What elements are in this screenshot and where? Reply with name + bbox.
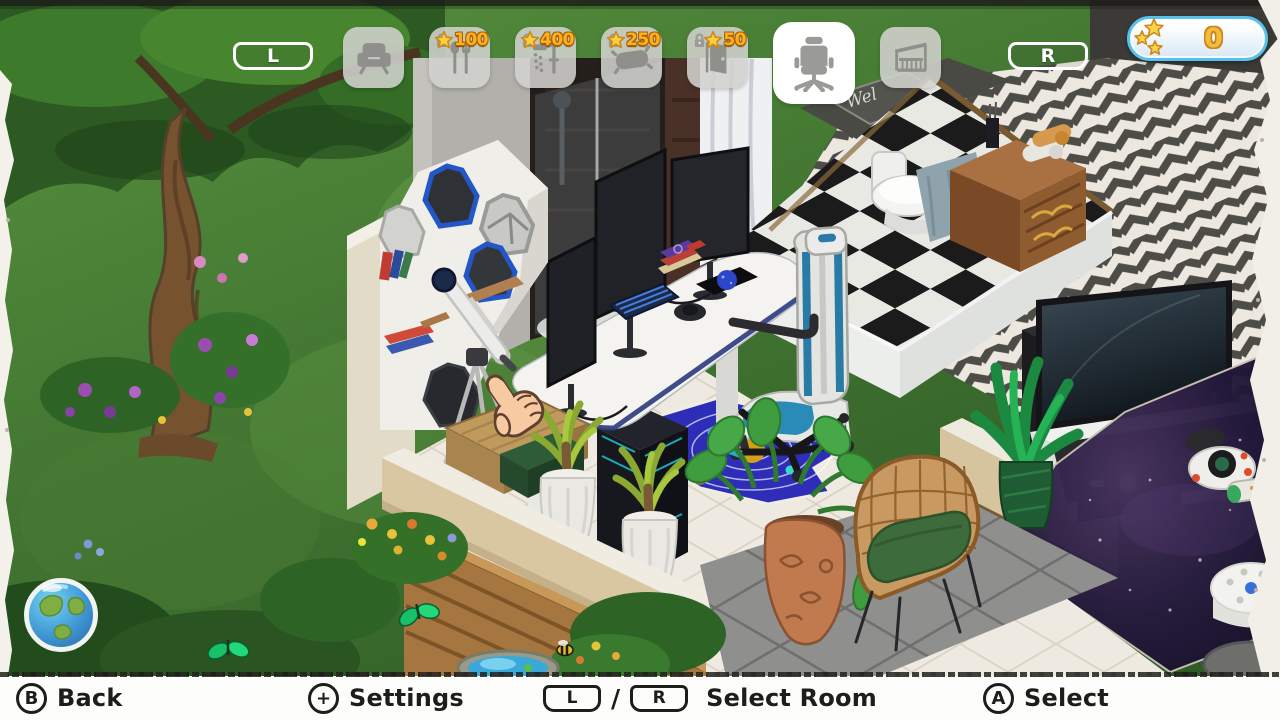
select-hint[interactable]: A Select bbox=[983, 676, 1109, 720]
a-button-icon: A bbox=[983, 683, 1014, 714]
b-button-icon: B bbox=[16, 683, 47, 714]
tab-price: 100 bbox=[434, 30, 488, 50]
stars-icon bbox=[1130, 17, 1176, 61]
tab-price: 50 bbox=[703, 30, 746, 50]
star-icon bbox=[434, 30, 454, 50]
select-room-label: Select Room bbox=[706, 684, 877, 712]
settings-hint[interactable]: + Settings bbox=[308, 676, 464, 720]
tab-hallway[interactable]: 50 bbox=[687, 27, 748, 88]
back-hint[interactable]: B Back bbox=[16, 676, 122, 720]
mouse bbox=[674, 303, 706, 321]
tab-bathroom[interactable]: 400 bbox=[515, 27, 576, 88]
left-shoulder-button[interactable]: L bbox=[233, 42, 313, 70]
plus-button-icon: + bbox=[308, 683, 339, 714]
office-chair-icon bbox=[785, 34, 843, 92]
tab-kitchen[interactable]: 100 bbox=[429, 27, 490, 88]
tab-price: 250 bbox=[606, 30, 660, 50]
settings-label: Settings bbox=[349, 684, 464, 712]
star-icon bbox=[606, 30, 626, 50]
select-room-hint[interactable]: L / R Select Room bbox=[543, 676, 877, 720]
tab-office[interactable] bbox=[773, 22, 855, 104]
tab-living-room[interactable] bbox=[343, 27, 404, 88]
back-label: Back bbox=[57, 684, 122, 712]
game-screen: Wel bbox=[0, 0, 1280, 720]
star-balance: 0 bbox=[1176, 23, 1265, 54]
l-key-icon: L bbox=[543, 685, 601, 712]
armchair-icon bbox=[353, 37, 395, 79]
footer-hint-bar: B Back + Settings L / R Select Room A Se… bbox=[0, 676, 1280, 720]
tab-bedroom[interactable]: 250 bbox=[601, 27, 662, 88]
balcony-icon bbox=[890, 37, 932, 79]
map-globe-button[interactable] bbox=[22, 576, 100, 654]
star-icon bbox=[703, 30, 723, 50]
star-icon bbox=[520, 30, 540, 50]
star-currency-display: 0 bbox=[1127, 16, 1268, 61]
right-shoulder-button[interactable]: R bbox=[1008, 42, 1088, 70]
room-category-tabs: 100 400 bbox=[343, 27, 1088, 104]
r-key-icon: R bbox=[630, 685, 688, 712]
separator: / bbox=[611, 684, 620, 713]
tab-balcony[interactable] bbox=[880, 27, 941, 88]
select-label: Select bbox=[1024, 684, 1109, 712]
tab-price: 400 bbox=[520, 30, 574, 50]
